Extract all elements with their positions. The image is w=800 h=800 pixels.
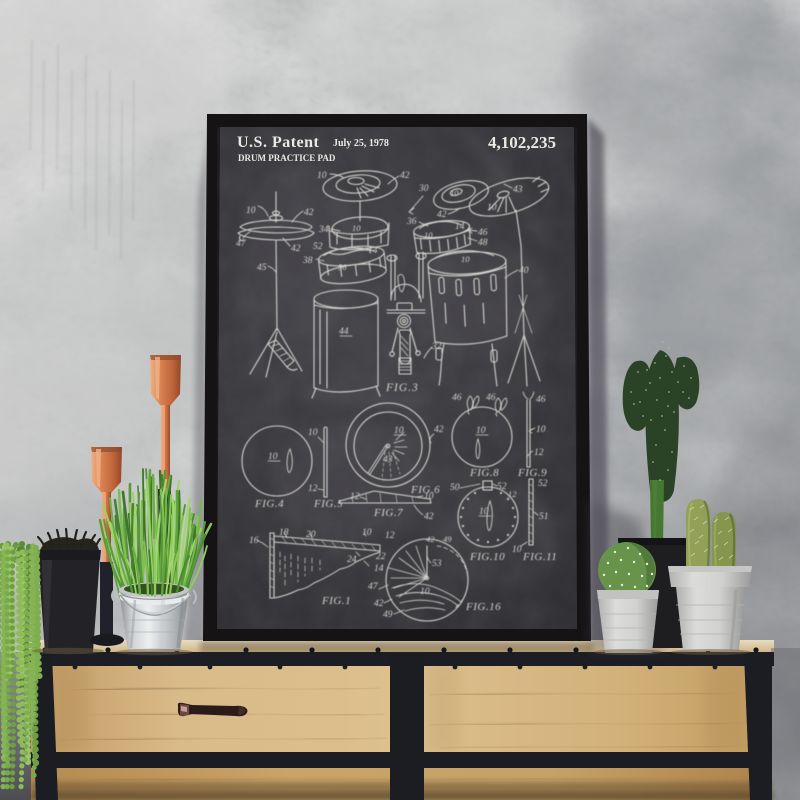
svg-text:FIG.5: FIG.5 xyxy=(313,498,343,510)
svg-text:34: 34 xyxy=(318,225,329,235)
svg-text:10: 10 xyxy=(424,492,434,502)
svg-text:38: 38 xyxy=(302,256,313,266)
svg-text:FIG.9: FIG.9 xyxy=(517,467,547,479)
svg-text:18: 18 xyxy=(279,528,289,538)
svg-text:12: 12 xyxy=(308,484,318,494)
svg-text:45: 45 xyxy=(257,263,267,273)
svg-text:10: 10 xyxy=(420,587,430,597)
svg-text:10: 10 xyxy=(317,171,327,181)
svg-text:42: 42 xyxy=(291,244,301,254)
svg-text:42: 42 xyxy=(304,208,314,218)
svg-text:50: 50 xyxy=(450,483,460,493)
svg-text:FIG.3: FIG.3 xyxy=(385,382,419,394)
svg-text:10: 10 xyxy=(461,254,470,264)
svg-text:DRUM PRACTICE PAD: DRUM PRACTICE PAD xyxy=(238,153,336,163)
svg-text:FIG.8: FIG.8 xyxy=(469,467,499,479)
svg-text:FIG.11: FIG.11 xyxy=(522,551,557,563)
svg-text:10: 10 xyxy=(308,428,318,438)
svg-text:10: 10 xyxy=(394,426,404,436)
svg-text:56: 56 xyxy=(338,262,347,272)
svg-text:44: 44 xyxy=(339,327,349,337)
svg-text:53: 53 xyxy=(432,559,442,569)
svg-text:10: 10 xyxy=(450,188,459,198)
svg-text:12: 12 xyxy=(350,492,360,502)
svg-text:46: 46 xyxy=(486,393,496,403)
svg-text:14: 14 xyxy=(455,222,465,232)
svg-text:FIG.16: FIG.16 xyxy=(465,601,501,613)
svg-text:30: 30 xyxy=(418,184,429,194)
svg-text:43: 43 xyxy=(383,455,393,465)
svg-text:FIG.7: FIG.7 xyxy=(373,507,403,519)
svg-text:51: 51 xyxy=(539,512,549,522)
svg-text:12: 12 xyxy=(385,531,395,541)
svg-text:10: 10 xyxy=(362,528,372,538)
svg-text:36: 36 xyxy=(406,217,417,227)
svg-text:4,102,235: 4,102,235 xyxy=(488,133,556,152)
svg-text:24: 24 xyxy=(347,555,357,565)
svg-text:FIG.4: FIG.4 xyxy=(254,498,284,510)
svg-text:10: 10 xyxy=(512,545,522,555)
svg-text:10: 10 xyxy=(352,223,361,233)
svg-text:10: 10 xyxy=(487,203,497,213)
svg-text:16: 16 xyxy=(249,536,259,546)
svg-text:49: 49 xyxy=(443,534,452,544)
svg-text:22: 22 xyxy=(376,552,386,562)
svg-text:10: 10 xyxy=(424,230,433,240)
svg-text:42: 42 xyxy=(434,425,444,435)
svg-text:46: 46 xyxy=(452,393,462,403)
svg-text:49: 49 xyxy=(383,610,393,620)
svg-text:14: 14 xyxy=(374,564,384,574)
svg-text:July 25, 1978: July 25, 1978 xyxy=(333,138,389,149)
svg-text:10: 10 xyxy=(476,426,486,436)
svg-text:46: 46 xyxy=(536,395,546,405)
svg-text:46: 46 xyxy=(478,228,488,238)
svg-text:42: 42 xyxy=(424,512,434,522)
svg-text:U.S. Patent: U.S. Patent xyxy=(237,134,320,151)
svg-text:10: 10 xyxy=(268,452,278,462)
svg-text:42: 42 xyxy=(400,171,410,181)
svg-text:10: 10 xyxy=(536,425,546,435)
svg-text:52: 52 xyxy=(313,242,323,252)
svg-text:42: 42 xyxy=(437,210,447,220)
svg-text:47: 47 xyxy=(236,239,247,249)
svg-text:42: 42 xyxy=(426,534,435,544)
svg-text:FIG.1: FIG.1 xyxy=(321,595,351,607)
svg-text:14: 14 xyxy=(368,246,378,256)
svg-text:52: 52 xyxy=(538,479,548,489)
svg-text:43: 43 xyxy=(513,185,523,195)
svg-text:52: 52 xyxy=(497,482,507,492)
svg-text:10: 10 xyxy=(479,507,489,517)
svg-text:10: 10 xyxy=(246,206,256,216)
svg-text:12: 12 xyxy=(508,489,517,499)
svg-text:FIG.10: FIG.10 xyxy=(469,551,505,563)
svg-text:40: 40 xyxy=(519,266,529,276)
svg-text:42: 42 xyxy=(374,599,384,609)
svg-text:12: 12 xyxy=(534,448,544,458)
svg-text:47: 47 xyxy=(368,582,379,592)
svg-text:48: 48 xyxy=(478,238,488,248)
